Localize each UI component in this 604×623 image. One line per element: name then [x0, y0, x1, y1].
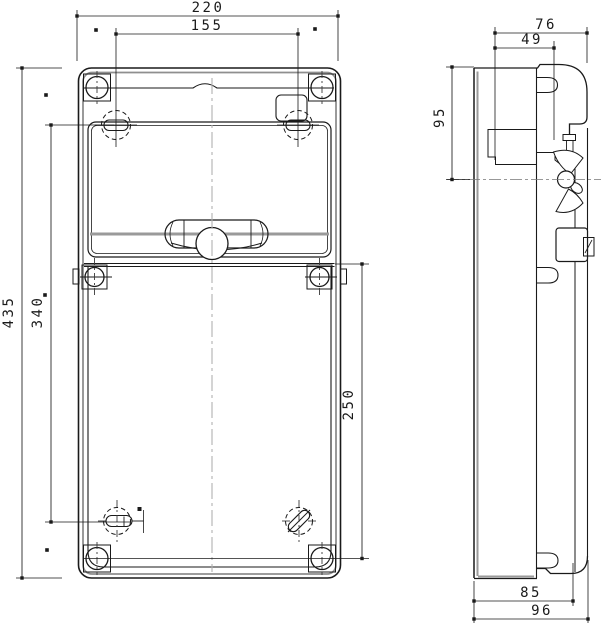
side-view [447, 65, 601, 579]
dimensions: 220 155 435 340 [1, 0, 590, 623]
din-rail-clip [554, 128, 595, 572]
dim-front-hole-spacing-y: 340 [30, 123, 131, 523]
dim-label-220: 220 [192, 0, 225, 16]
dim-front-hole-spacing-x: 155 [114, 18, 299, 147]
dim-label-85: 85 [520, 585, 542, 601]
side-rib-tabs [537, 78, 558, 569]
knockout-opening [276, 95, 307, 121]
enclosure-outline [73, 68, 347, 578]
mount-hole-bottom-left [98, 500, 144, 542]
lid-top-seam [84, 84, 334, 88]
drawing-canvas: 220 155 435 340 [0, 0, 604, 623]
dim-label-95: 95 [432, 106, 448, 128]
dim-side-cover-depth: 49 [493, 32, 555, 140]
dim-label-76: 76 [535, 17, 557, 33]
side-profile [474, 65, 587, 579]
dim-label-155: 155 [191, 18, 224, 34]
dim-label-96: 96 [531, 603, 553, 619]
dim-side-upper-height: 95 [432, 65, 474, 181]
front-view [73, 68, 347, 578]
mount-hole-bottom-right [282, 500, 316, 542]
technical-drawing-sheet: 220 155 435 340 [0, 0, 604, 623]
dim-label-435: 435 [1, 296, 17, 329]
dim-label-49: 49 [521, 32, 543, 48]
dim-label-250: 250 [341, 388, 357, 421]
dim-side-body-depth: 85 [472, 563, 574, 623]
lid-split-seam [84, 264, 335, 267]
dim-label-340: 340 [30, 296, 46, 329]
side-bottom-step [537, 556, 588, 574]
